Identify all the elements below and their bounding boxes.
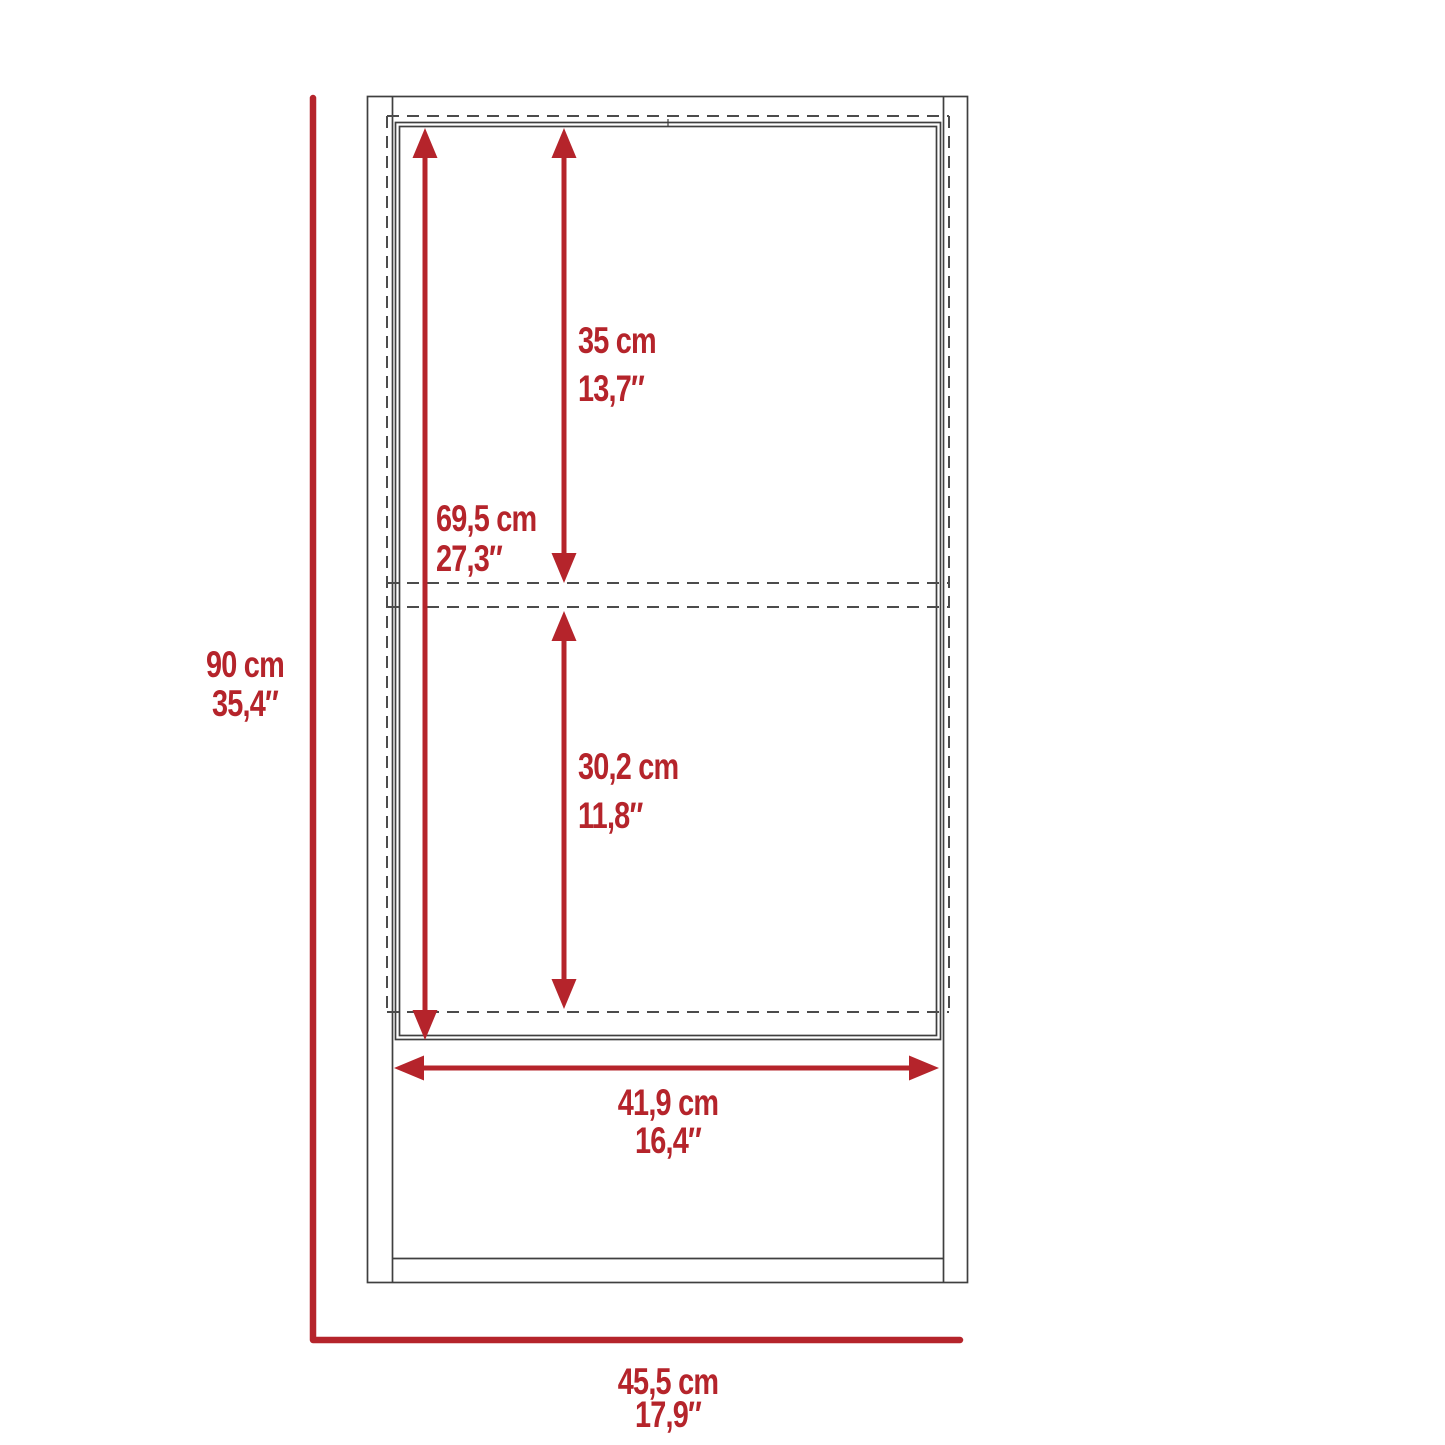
- upper-section-cm-label: 35 cm: [578, 322, 656, 359]
- dimension-diagram-page: 90 cm 35,4″ 69,5 cm 27,3″ 35 cm 13,7″ 30…: [0, 0, 1445, 1445]
- upper-section-in-label: 13,7″: [578, 370, 644, 407]
- door-height-in-label: 27,3″: [436, 540, 502, 577]
- overall-height-in-label: 35,4″: [198, 685, 292, 722]
- inner-width-in-label: 16,4″: [581, 1122, 754, 1159]
- arrow-head-right: [909, 1056, 939, 1081]
- door-height-cm-label: 69,5 cm: [436, 500, 536, 537]
- overall-width-in-label: 17,9″: [581, 1396, 754, 1433]
- arrow-shaft: [562, 155, 567, 555]
- arrow-head-up: [552, 128, 577, 158]
- arrow-head-up: [413, 128, 438, 158]
- arrow-head-left: [394, 1056, 424, 1081]
- arrow-head-down: [552, 553, 577, 583]
- overall-height-cm-label: 90 cm: [198, 646, 292, 683]
- arrow-shaft: [562, 638, 567, 981]
- arrow-head-up: [552, 611, 577, 641]
- inner-width-arrow: [394, 1056, 939, 1081]
- arrow-head-down: [552, 979, 577, 1009]
- upper-section-arrow: [552, 128, 577, 583]
- inner-width-cm-label: 41,9 cm: [581, 1084, 754, 1121]
- door-panel-outer: [396, 123, 941, 1040]
- arrow-shaft: [423, 155, 428, 1013]
- door-panel-inner: [400, 127, 937, 1036]
- lower-section-in-label: 11,8″: [578, 797, 643, 834]
- arrow-shaft: [421, 1066, 912, 1071]
- lower-section-arrow: [552, 611, 577, 1009]
- lower-section-cm-label: 30,2 cm: [578, 748, 678, 785]
